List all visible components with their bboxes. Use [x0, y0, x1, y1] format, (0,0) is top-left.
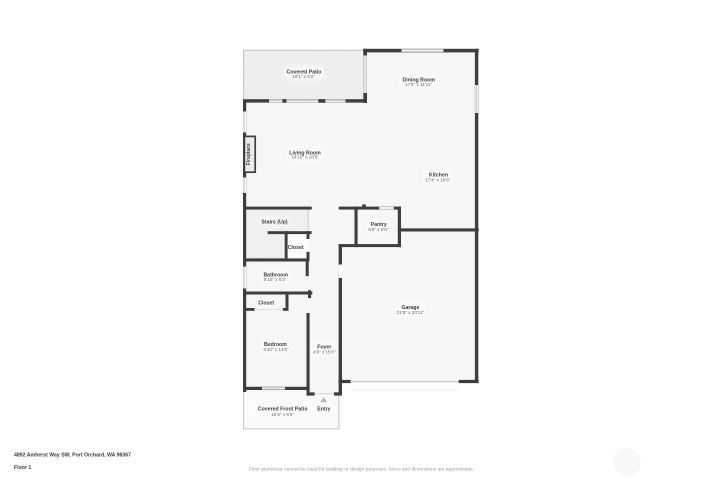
svg-text:6'9" x 5'8": 6'9" x 5'8": [368, 227, 388, 232]
svg-text:9'10" x 5'3": 9'10" x 5'3": [264, 277, 287, 282]
svg-text:4892 Amherst Way SW, Port Orch: 4892 Amherst Way SW, Port Orchard, WA 98…: [14, 453, 131, 459]
svg-text:15'6" x 6'5": 15'6" x 6'5": [271, 412, 294, 417]
svg-text:Stairs (Up): Stairs (Up): [261, 219, 288, 225]
svg-text:Closet: Closet: [288, 245, 304, 251]
svg-text:17'6" x 11'11": 17'6" x 11'11": [405, 82, 432, 87]
svg-text:17'4" x 18'6": 17'4" x 18'6": [425, 178, 451, 183]
svg-text:18'10" x 18'9": 18'10" x 18'9": [291, 155, 319, 160]
svg-text:19'1" x 8'2": 19'1" x 8'2": [292, 74, 315, 79]
svg-text:Floor plans/tour cannot be use: Floor plans/tour cannot be used for buil…: [249, 467, 474, 473]
svg-text:Floor 1: Floor 1: [14, 465, 31, 471]
svg-text:Entry: Entry: [317, 407, 330, 413]
svg-text:Closet: Closet: [258, 301, 274, 307]
svg-text:21'5" x 20'11": 21'5" x 20'11": [397, 310, 425, 315]
svg-text:4'8" x 15'6": 4'8" x 15'6": [313, 350, 336, 355]
svg-text:Fireplace: Fireplace: [246, 143, 252, 165]
svg-text:9'10" x 14'8": 9'10" x 14'8": [263, 347, 289, 352]
